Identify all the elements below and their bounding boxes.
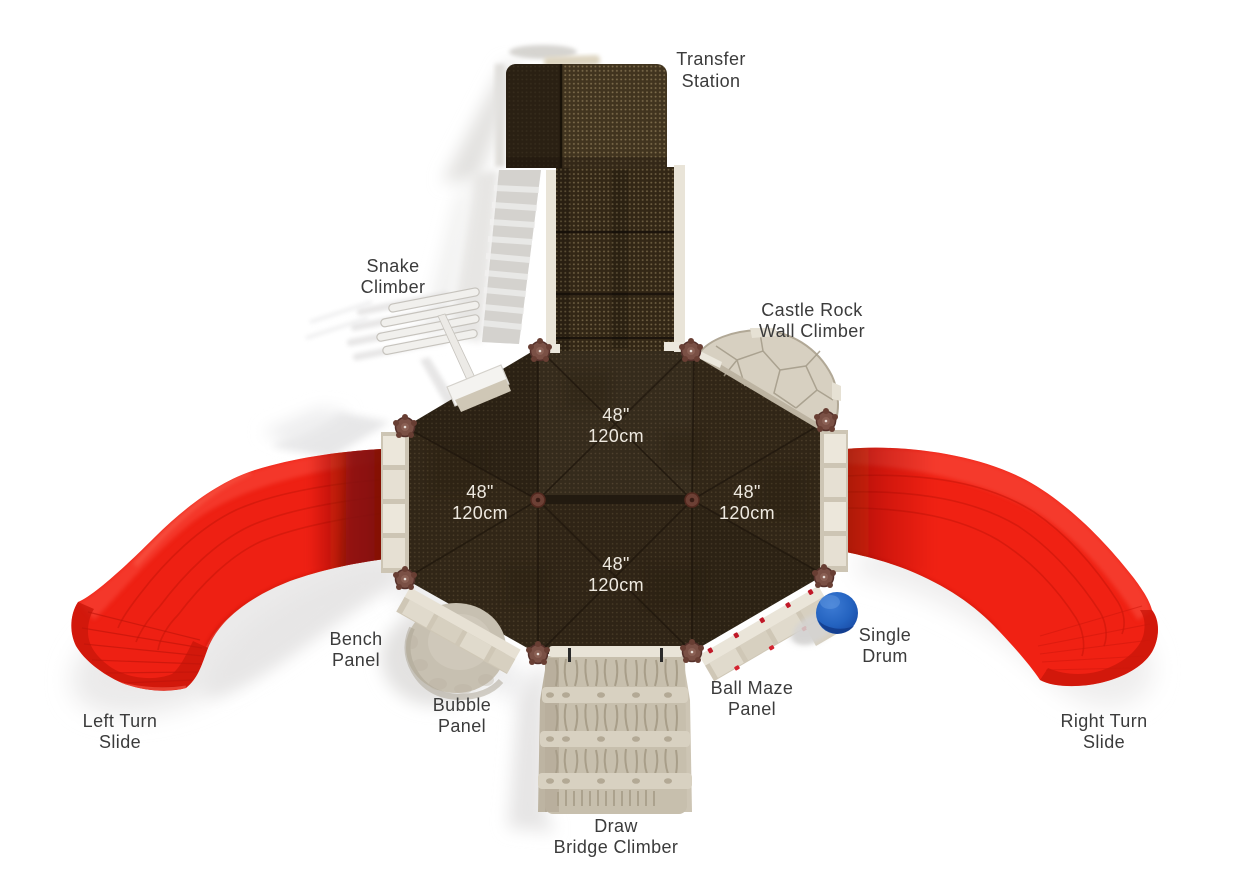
svg-text:Drum: Drum [862,646,908,666]
svg-text:120cm: 120cm [588,426,644,446]
svg-text:48": 48" [602,405,630,425]
svg-text:120cm: 120cm [588,575,644,595]
svg-text:Slide: Slide [99,732,141,752]
svg-text:Panel: Panel [332,650,380,670]
svg-text:Bridge Climber: Bridge Climber [554,837,679,857]
svg-text:Ball Maze: Ball Maze [711,678,794,698]
svg-text:120cm: 120cm [452,503,508,523]
svg-text:Left Turn: Left Turn [83,711,158,731]
svg-text:48": 48" [733,482,761,502]
svg-text:48": 48" [602,554,630,574]
svg-text:Castle Rock: Castle Rock [761,300,863,320]
svg-text:Station: Station [682,71,741,91]
svg-text:Draw: Draw [594,816,638,836]
svg-text:Single: Single [859,625,911,645]
svg-text:Slide: Slide [1083,732,1125,752]
svg-text:Right Turn: Right Turn [1060,711,1147,731]
svg-text:Climber: Climber [361,277,426,297]
svg-text:48": 48" [466,482,494,502]
svg-text:Panel: Panel [728,699,776,719]
svg-text:Snake: Snake [366,256,419,276]
svg-text:Bubble: Bubble [433,695,491,715]
svg-text:Transfer: Transfer [676,49,746,69]
svg-text:Wall Climber: Wall Climber [759,321,865,341]
svg-text:Bench: Bench [329,629,382,649]
svg-text:120cm: 120cm [719,503,775,523]
svg-text:Panel: Panel [438,716,486,736]
